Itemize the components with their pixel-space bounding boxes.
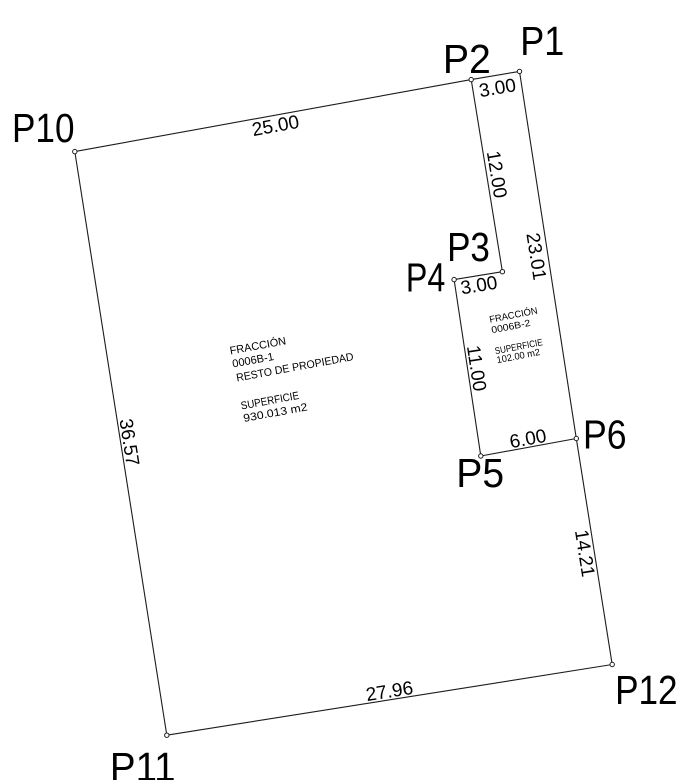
svg-text:P4: P4 bbox=[406, 255, 445, 301]
svg-text:P10: P10 bbox=[12, 105, 75, 151]
svg-text:P12: P12 bbox=[615, 667, 678, 713]
svg-text:P6: P6 bbox=[583, 412, 627, 458]
svg-text:P5: P5 bbox=[456, 450, 504, 496]
svg-text:P1: P1 bbox=[520, 18, 564, 64]
svg-text:P3: P3 bbox=[447, 224, 490, 270]
svg-text:P2: P2 bbox=[443, 36, 491, 82]
svg-text:P11: P11 bbox=[110, 744, 176, 780]
